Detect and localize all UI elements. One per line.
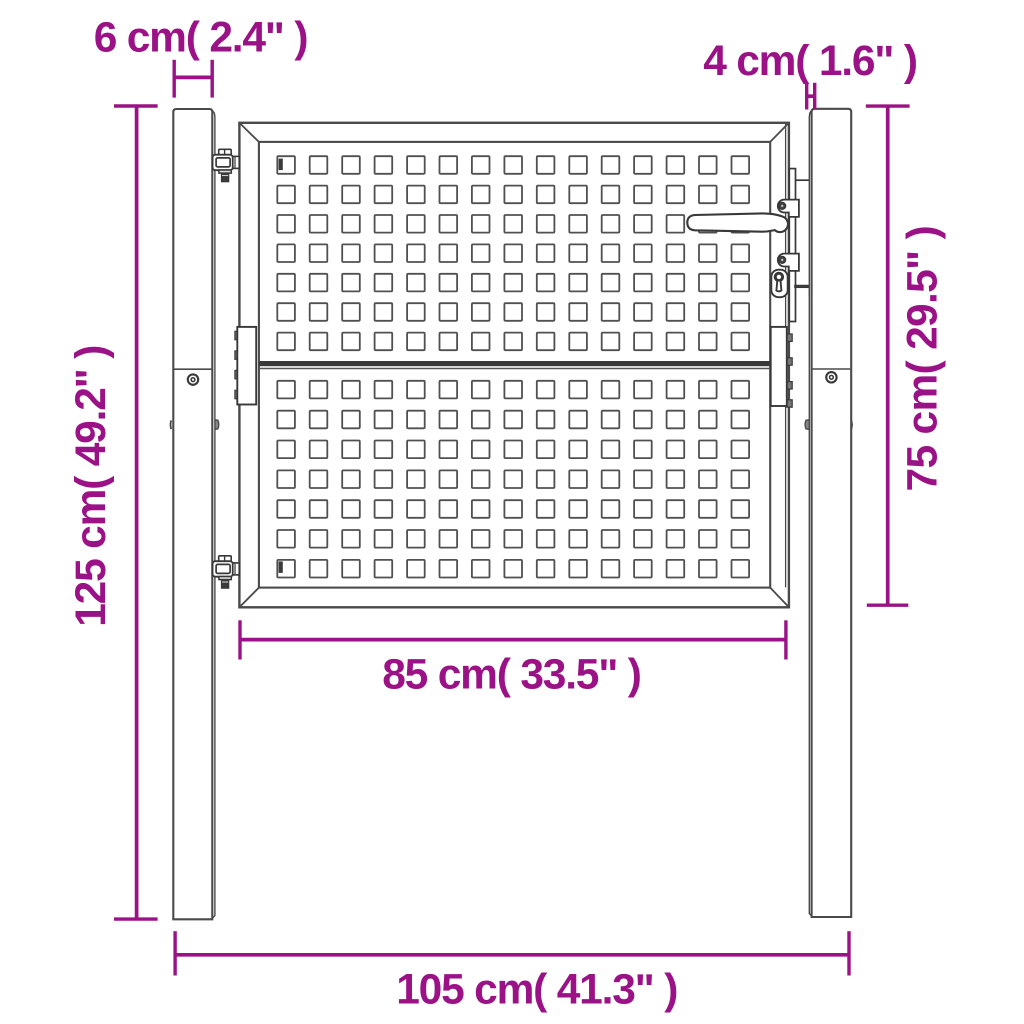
svg-text:4 cm( 1.6" ): 4 cm( 1.6" ) [703,38,917,85]
svg-text:125 cm( 49.2" ): 125 cm( 49.2" ) [68,346,115,627]
svg-text:6 cm( 2.4" ): 6 cm( 2.4" ) [94,15,308,62]
svg-text:85 cm( 33.5" ): 85 cm( 33.5" ) [382,652,641,699]
svg-text:75 cm( 29.5" ): 75 cm( 29.5" ) [900,226,947,492]
svg-text:105 cm( 41.3" ): 105 cm( 41.3" ) [396,967,677,1014]
